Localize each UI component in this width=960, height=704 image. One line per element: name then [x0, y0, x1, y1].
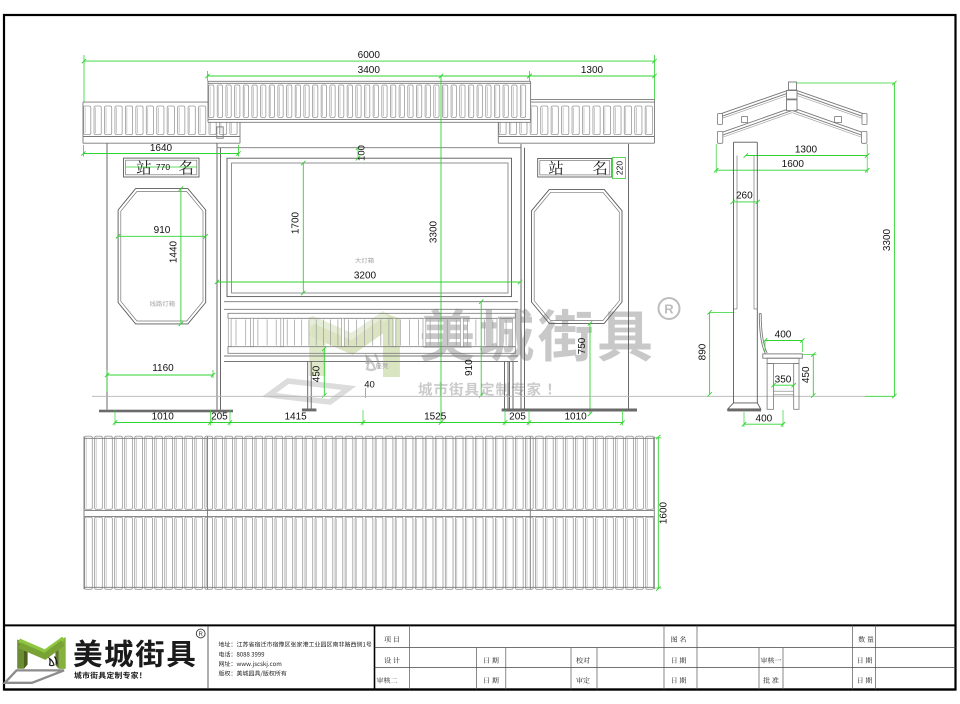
svg-text:6000: 6000: [358, 50, 381, 61]
svg-text:40: 40: [364, 380, 375, 391]
svg-text:1300: 1300: [795, 145, 818, 156]
svg-text:350: 350: [775, 375, 792, 386]
svg-text:750: 750: [577, 337, 588, 354]
svg-text:1700: 1700: [291, 211, 302, 234]
svg-text:3300: 3300: [428, 220, 439, 243]
svg-text:450: 450: [801, 366, 812, 383]
svg-text:R: R: [199, 632, 204, 638]
svg-text:1160: 1160: [152, 363, 174, 374]
svg-text:400: 400: [756, 413, 773, 424]
svg-text:770: 770: [156, 162, 170, 172]
svg-text:910: 910: [154, 225, 171, 236]
svg-text:1010: 1010: [152, 412, 175, 423]
svg-text:890: 890: [697, 343, 708, 360]
svg-text:1415: 1415: [284, 412, 307, 423]
svg-text:3300: 3300: [882, 228, 893, 251]
svg-text:1600: 1600: [659, 501, 670, 524]
svg-text:205: 205: [211, 412, 228, 423]
svg-text:100: 100: [357, 145, 368, 161]
svg-text:1300: 1300: [581, 65, 604, 76]
svg-text:450: 450: [311, 365, 322, 382]
svg-text:3200: 3200: [354, 271, 377, 282]
svg-text:3400: 3400: [358, 65, 381, 76]
svg-text:1010: 1010: [564, 412, 587, 423]
svg-text:220: 220: [615, 161, 625, 175]
svg-text:1525: 1525: [424, 412, 447, 423]
svg-text:1600: 1600: [782, 159, 805, 170]
svg-text:260: 260: [736, 190, 753, 201]
svg-text:910: 910: [464, 359, 475, 376]
svg-text:R: R: [664, 302, 674, 317]
svg-text:1440: 1440: [168, 240, 179, 263]
svg-text:1640: 1640: [150, 143, 173, 154]
svg-text:205: 205: [509, 412, 526, 423]
svg-text:400: 400: [775, 330, 792, 341]
